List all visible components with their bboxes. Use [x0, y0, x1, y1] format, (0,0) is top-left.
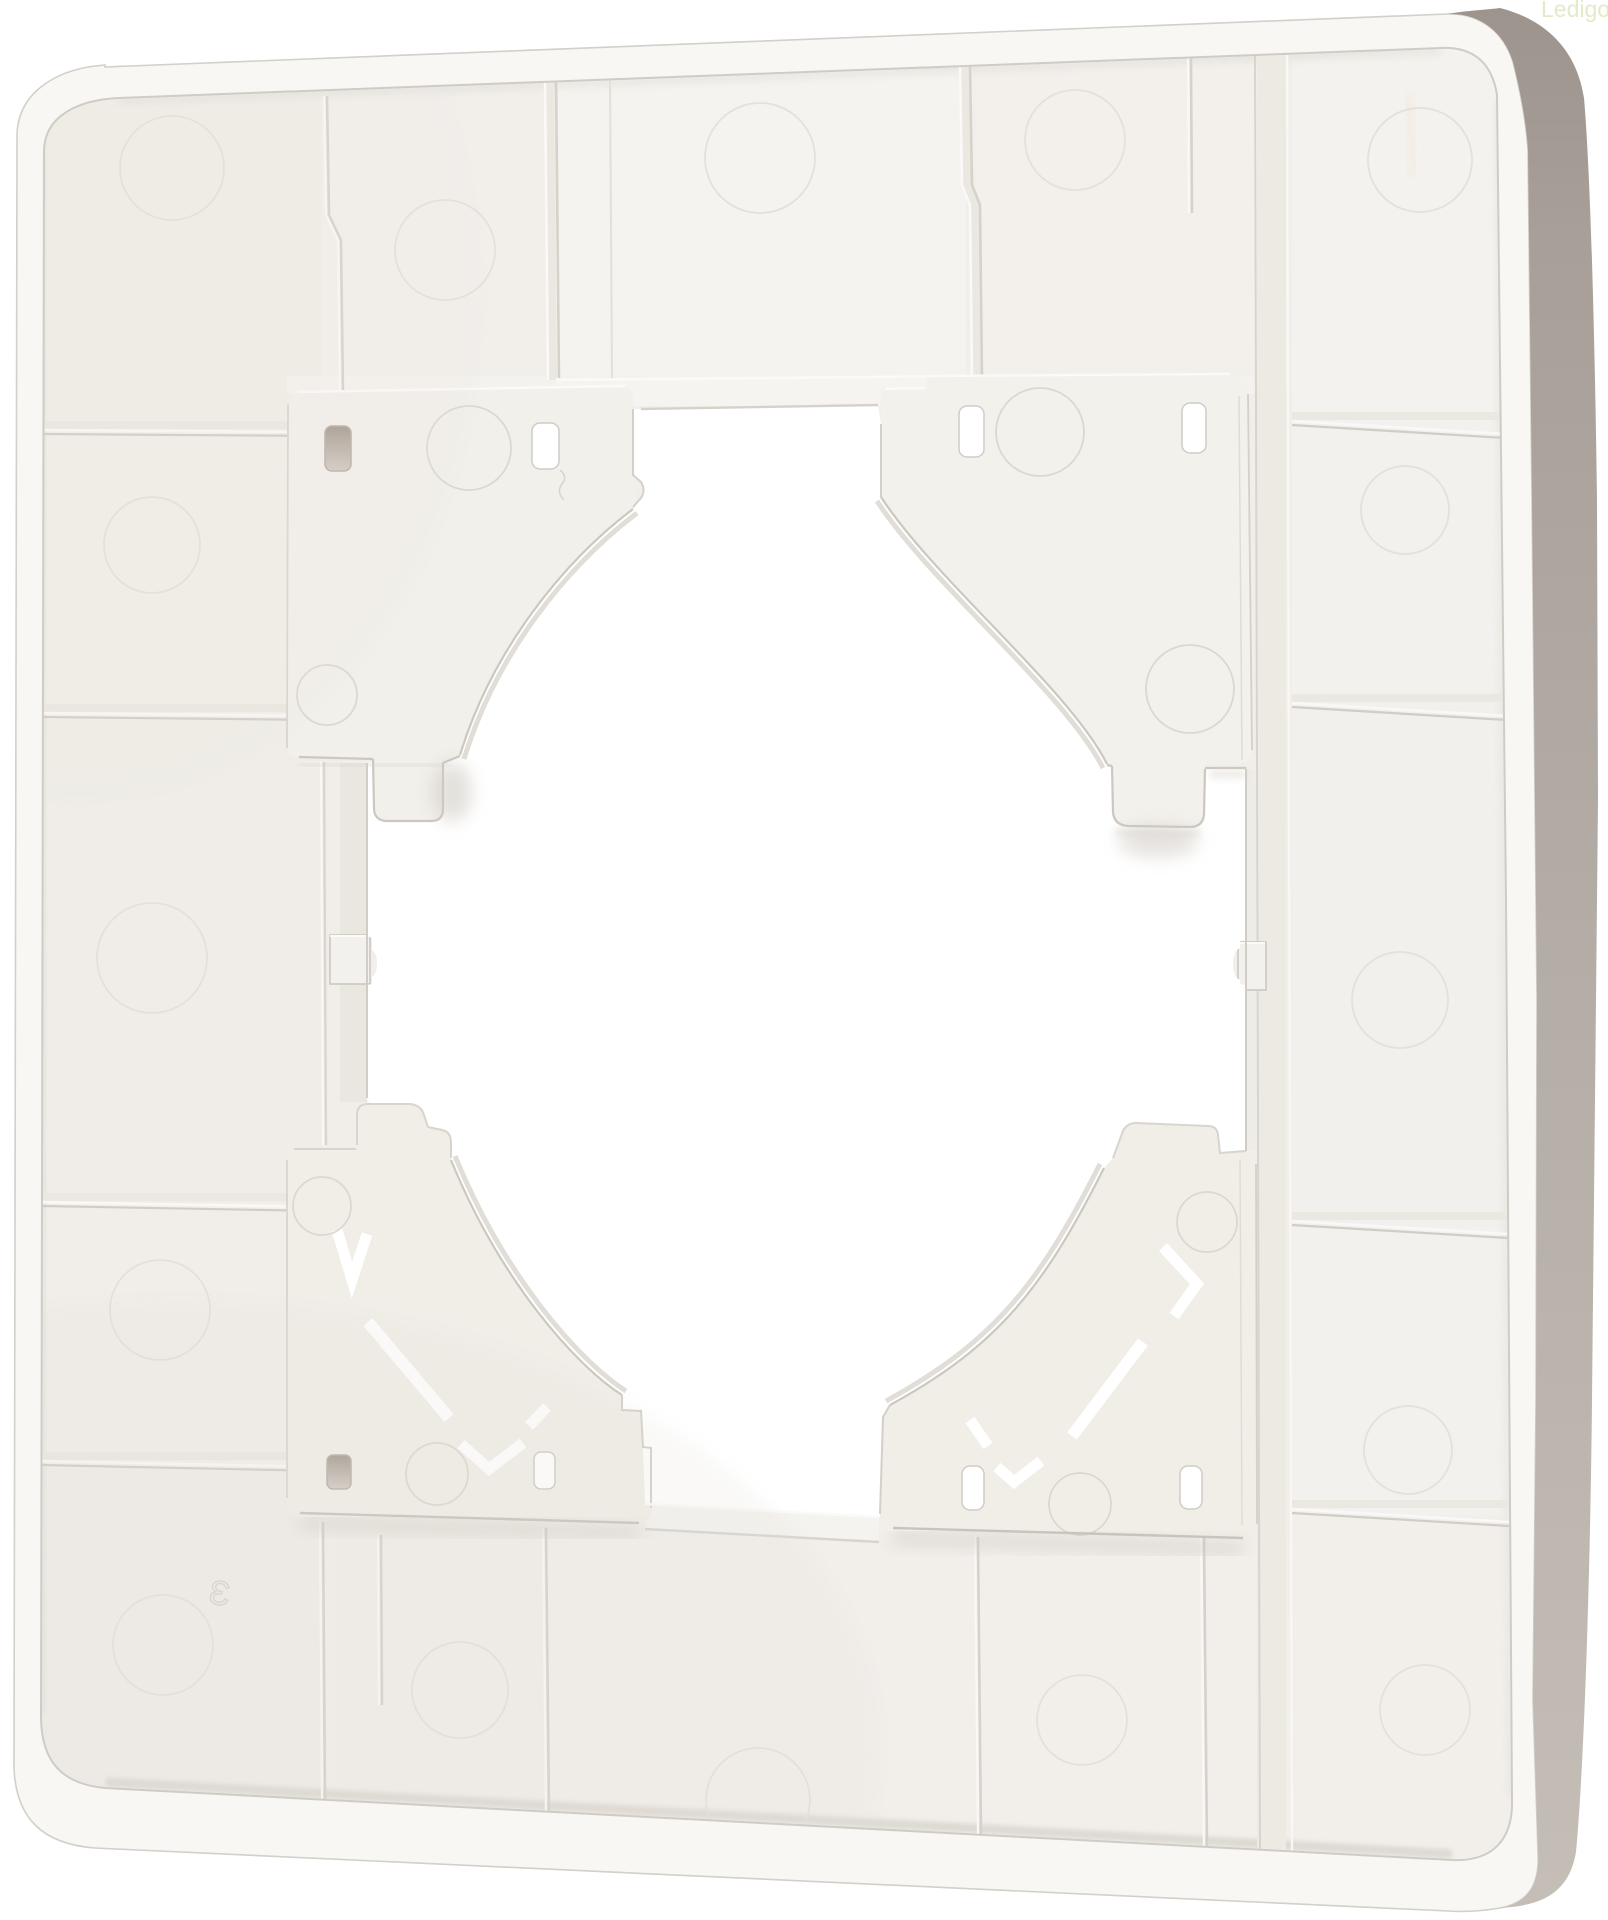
- svg-text:Ledigo: Ledigo: [1541, 0, 1608, 22]
